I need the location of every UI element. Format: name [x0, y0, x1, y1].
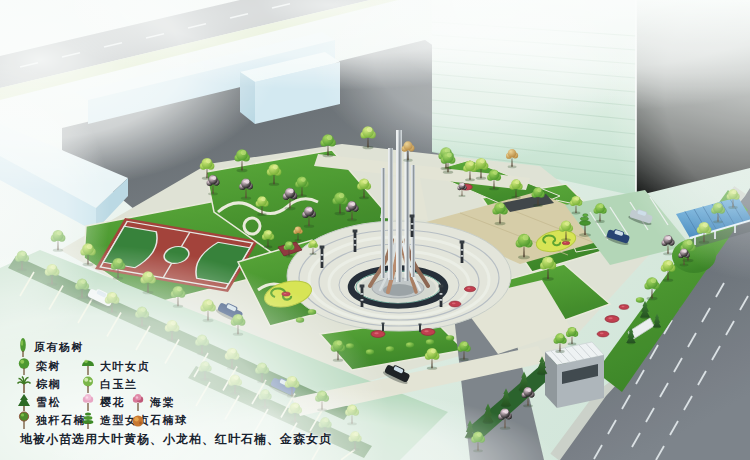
landscape-plan-rendering: 原有杨树 栾树 大叶女贞 棕榈 白玉兰 [0, 0, 750, 460]
fog-overlays [0, 0, 750, 460]
site-rendering-scene [0, 0, 750, 460]
